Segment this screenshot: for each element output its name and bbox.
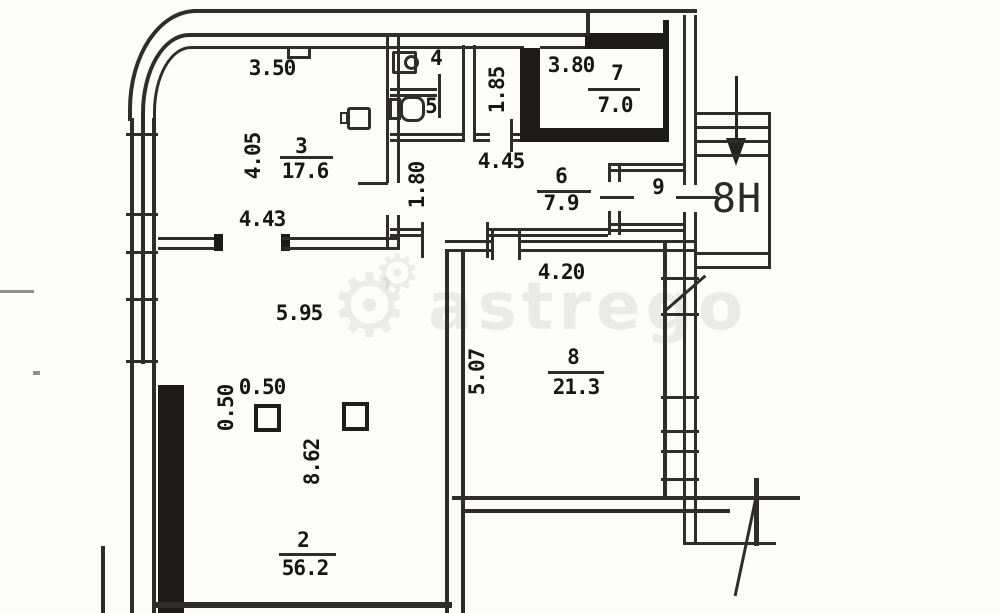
dim-alcove-height: 1.85 — [485, 67, 509, 114]
wall-segment — [473, 133, 490, 136]
wall-segment — [126, 251, 158, 254]
room-area-2: 56.2 — [282, 556, 329, 580]
entrance-arrow-shaft — [735, 76, 738, 142]
scan-artifact — [33, 371, 40, 375]
wall-segment — [473, 139, 490, 142]
dim-room3-bottom: 4.43 — [239, 207, 286, 231]
wall-segment — [608, 223, 685, 226]
gear-icon: ⚙ — [374, 248, 421, 300]
scan-artifact — [0, 290, 34, 293]
wall-segment — [445, 240, 493, 243]
wall-segment — [390, 234, 423, 237]
dim-room7-top: 3.80 — [548, 53, 595, 77]
wall-segment — [386, 35, 389, 183]
vent-shaft — [347, 107, 371, 130]
wall-segment — [464, 509, 730, 513]
wall-thick-segment — [214, 234, 223, 251]
wall-segment — [386, 215, 389, 250]
wall-segment — [193, 9, 697, 13]
wall-segment — [390, 94, 437, 97]
wall-segment — [695, 252, 771, 255]
room-number-8: 8 — [567, 345, 579, 369]
wall-segment — [452, 496, 800, 500]
wall-segment — [358, 182, 388, 185]
wall-segment — [282, 237, 397, 240]
wall-segment — [130, 118, 134, 613]
wall-segment — [661, 313, 699, 316]
vent-knob — [340, 112, 348, 124]
wall-segment — [754, 478, 759, 546]
wall-segment — [158, 237, 216, 240]
wall-segment — [390, 139, 462, 142]
wall-segment — [600, 196, 634, 199]
wall-segment — [126, 298, 158, 301]
wall-segment — [126, 213, 158, 216]
wall-segment — [694, 15, 697, 185]
wall-segment — [390, 228, 423, 231]
wall-segment — [608, 163, 685, 166]
sink-bowl-icon — [404, 55, 419, 70]
column — [342, 402, 369, 431]
fraction-line — [588, 88, 640, 91]
wall-segment — [461, 250, 465, 613]
dim-hall-height: 1.80 — [405, 162, 429, 209]
wall-segment — [141, 124, 145, 364]
dim-hall-width: 4.45 — [478, 149, 525, 173]
wall-segment — [686, 542, 776, 545]
dim-room2-height: 8.62 — [300, 439, 324, 486]
wall-segment — [661, 478, 699, 481]
room-number-9: 9 — [652, 175, 664, 199]
wall-segment — [438, 74, 441, 118]
wall-segment — [695, 112, 771, 115]
wall-segment — [126, 360, 158, 363]
room-area-8: 21.3 — [553, 375, 600, 399]
wall-thick-segment — [158, 385, 184, 613]
room-number-6: 6 — [555, 164, 567, 188]
wall-segment — [152, 118, 156, 613]
wall-segment — [676, 196, 718, 199]
wall-segment — [520, 240, 697, 243]
dim-room3-top: 3.50 — [249, 56, 296, 80]
wall-segment — [683, 15, 686, 185]
wall-segment — [695, 126, 771, 129]
wall-segment — [154, 602, 452, 608]
dim-room3-left: 4.05 — [241, 133, 265, 180]
wall-segment — [695, 140, 771, 143]
wall-segment — [661, 277, 699, 280]
wall-segment — [462, 45, 465, 142]
wall-segment — [695, 266, 771, 269]
wall-segment — [520, 249, 697, 252]
wall-segment — [390, 88, 437, 91]
room-area-3: 17.6 — [282, 159, 329, 183]
wall-segment — [586, 12, 590, 36]
wall-segment — [518, 231, 521, 260]
wall-segment — [287, 56, 311, 59]
wall-segment — [695, 154, 771, 157]
wall-thick-segment — [585, 33, 667, 49]
room-number-3: 3 — [295, 134, 307, 158]
wall-segment — [608, 169, 685, 172]
wall-segment — [473, 45, 476, 142]
fraction-line — [548, 371, 604, 374]
wall-segment — [421, 222, 424, 258]
wall-segment — [608, 229, 685, 232]
wall-segment — [487, 228, 608, 231]
wall-segment — [126, 133, 158, 136]
wall-segment — [445, 249, 493, 252]
wall-segment — [397, 35, 400, 183]
floor-plan: ⚙ ⚙ astrego 3.50 4.05 4.43 3 17.6 4 5 1.… — [0, 0, 1000, 613]
wall-segment — [101, 546, 105, 613]
room-number-2: 2 — [297, 528, 309, 552]
dim-column-offset-v: 0.50 — [214, 385, 238, 432]
room-number-5: 5 — [425, 94, 437, 118]
wall-segment — [390, 133, 462, 136]
wall-segment — [282, 247, 397, 250]
wall-segment — [661, 430, 699, 433]
dim-room2-width: 5.95 — [276, 301, 323, 325]
dim-room8-top: 4.20 — [538, 260, 585, 284]
room-number-7: 7 — [611, 61, 623, 85]
wall-segment — [510, 119, 513, 152]
wall-thick-segment — [663, 20, 669, 142]
wall-segment — [445, 250, 449, 613]
wall-segment — [768, 112, 771, 269]
wall-segment — [491, 231, 494, 260]
wall-segment — [397, 215, 400, 250]
wall-segment — [661, 450, 699, 453]
wall-thick-segment — [520, 128, 668, 142]
wall-segment — [158, 247, 216, 250]
dim-column-offset-h: 0.50 — [239, 375, 286, 399]
room-area-6: 7.9 — [544, 191, 579, 215]
unit-number-label: 8Н — [712, 176, 762, 222]
wall-segment — [487, 234, 608, 237]
room-area-7: 7.0 — [598, 93, 633, 117]
room-number-4: 4 — [430, 46, 442, 70]
column — [254, 404, 281, 432]
dim-room8-left: 5.07 — [465, 349, 489, 396]
wall-segment — [661, 396, 699, 399]
toilet-icon — [400, 96, 425, 122]
